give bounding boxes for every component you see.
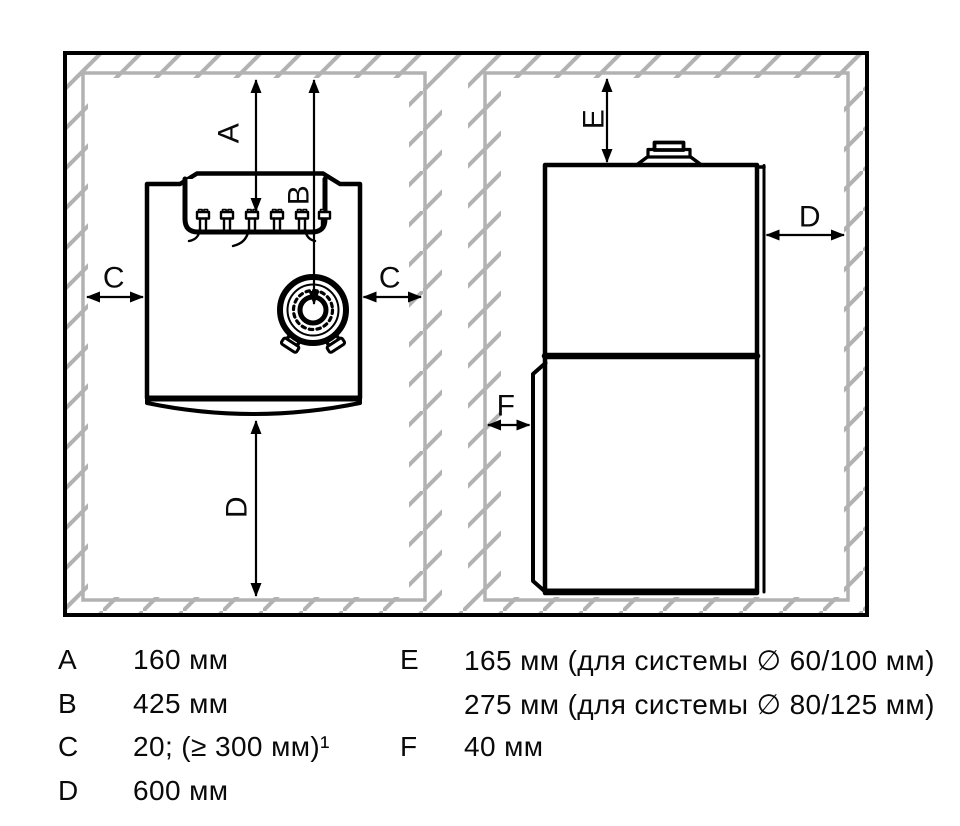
legend-key-A: A bbox=[58, 644, 77, 676]
legend-key-D: D bbox=[58, 775, 79, 807]
dim-label-D-front: D bbox=[221, 496, 254, 518]
legend-value-D: 600 мм bbox=[133, 775, 228, 807]
screenshot-root: A B C C D E D F A 160 мм B 425 мм C 20; … bbox=[0, 0, 960, 826]
legend-key-F: F bbox=[400, 731, 418, 763]
dim-label-E: E bbox=[578, 109, 611, 130]
legend-value-E1: 165 мм (для системы ∅ 60/100 мм) bbox=[464, 644, 935, 677]
boiler-body-side bbox=[545, 165, 757, 593]
dim-label-C-right: C bbox=[379, 262, 401, 295]
dim-label-A: A bbox=[213, 123, 246, 144]
legend-key-C: C bbox=[58, 731, 79, 763]
legend-key-E: E bbox=[400, 644, 419, 676]
legend-key-B: B bbox=[58, 688, 77, 720]
boiler-front-view bbox=[147, 174, 360, 415]
installation-clearance-figure: A B C C D E D F bbox=[63, 51, 869, 617]
legend-value-B: 425 мм bbox=[133, 688, 228, 720]
dim-label-C-left: C bbox=[103, 262, 125, 295]
legend-value-C: 20; (≥ 300 мм)¹ bbox=[133, 731, 330, 763]
dim-label-F: F bbox=[497, 390, 516, 423]
legend-value-E2: 275 мм (для системы ∅ 80/125 мм) bbox=[464, 688, 935, 721]
dim-label-B: B bbox=[283, 185, 316, 206]
boiler-side-view bbox=[533, 143, 764, 594]
legend-value-A: 160 мм bbox=[133, 644, 228, 676]
dim-label-D-side: D bbox=[799, 201, 821, 234]
legend-value-F: 40 мм bbox=[464, 731, 543, 763]
